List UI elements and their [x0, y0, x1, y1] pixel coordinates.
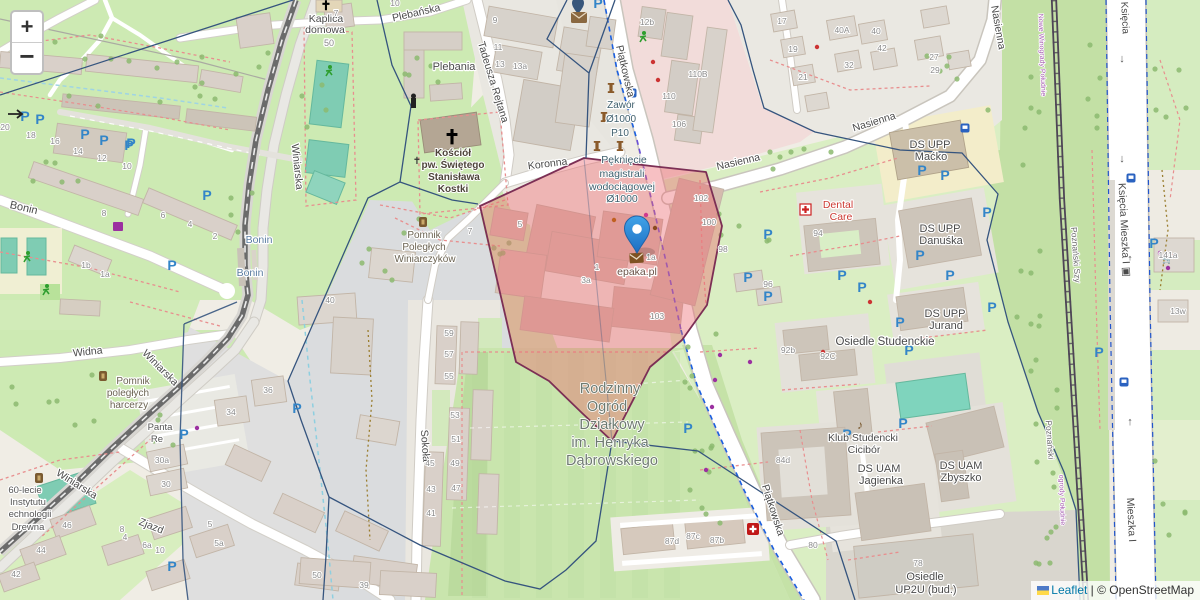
svg-text:P: P: [1149, 235, 1158, 251]
svg-text:Jagienka: Jagienka: [859, 475, 904, 487]
svg-text:46: 46: [62, 520, 72, 530]
svg-text:UP2U (bud.): UP2U (bud.): [895, 584, 956, 596]
svg-text:19: 19: [788, 44, 798, 54]
svg-text:P: P: [292, 400, 301, 416]
svg-text:84d: 84d: [776, 455, 790, 465]
svg-text:Care: Care: [830, 211, 853, 223]
svg-text:110: 110: [662, 91, 676, 101]
svg-text:✝: ✝: [321, 0, 332, 13]
svg-text:1a: 1a: [100, 269, 110, 279]
svg-text:13a: 13a: [513, 61, 527, 71]
svg-text:18: 18: [26, 130, 36, 140]
svg-text:Instytutu: Instytutu: [10, 497, 46, 508]
svg-text:↓: ↓: [1119, 153, 1125, 165]
svg-text:1: 1: [595, 262, 600, 272]
svg-text:wodociągowej: wodociągowej: [588, 181, 655, 193]
svg-text:Pomnik: Pomnik: [407, 230, 441, 241]
svg-text:29: 29: [930, 65, 940, 75]
svg-text:Drewna: Drewna: [12, 522, 45, 533]
svg-text:32: 32: [844, 60, 854, 70]
svg-text:P: P: [945, 267, 954, 283]
svg-text:DS UPP: DS UPP: [920, 223, 961, 235]
svg-text:Pęknięcie: Pęknięcie: [601, 154, 647, 166]
svg-text:P: P: [837, 267, 846, 283]
svg-text:3a: 3a: [581, 275, 591, 285]
svg-text:P: P: [1094, 344, 1103, 360]
svg-text:7: 7: [468, 226, 473, 236]
svg-text:39: 39: [359, 580, 369, 590]
svg-text:P: P: [202, 187, 211, 203]
svg-text:43: 43: [426, 484, 436, 494]
svg-text:92b: 92b: [781, 345, 795, 355]
svg-text:DS UAM: DS UAM: [858, 463, 901, 475]
svg-text:Bonin: Bonin: [246, 234, 273, 246]
svg-text:4: 4: [123, 532, 128, 542]
svg-text:87d: 87d: [665, 536, 679, 546]
svg-text:6a: 6a: [142, 540, 152, 550]
svg-text:10: 10: [390, 0, 400, 8]
svg-text:✝: ✝: [444, 127, 461, 149]
svg-text:45: 45: [425, 458, 435, 468]
svg-text:100: 100: [702, 217, 716, 227]
svg-text:P: P: [898, 415, 907, 431]
svg-text:P: P: [167, 257, 176, 273]
svg-text:5: 5: [518, 219, 523, 229]
svg-text:98: 98: [718, 244, 728, 254]
svg-text:Dąbrowskiego: Dąbrowskiego: [566, 453, 658, 469]
svg-text:4: 4: [188, 219, 193, 229]
svg-text:P: P: [982, 204, 991, 220]
svg-text:Osiedle Studenckie: Osiedle Studenckie: [835, 336, 934, 348]
svg-text:P: P: [35, 111, 44, 127]
svg-text:9: 9: [493, 15, 498, 25]
svg-text:Maćko: Maćko: [915, 151, 947, 163]
svg-text:P: P: [763, 226, 772, 242]
svg-text:im. Henryka: im. Henryka: [571, 435, 649, 451]
svg-text:harcerzy: harcerzy: [110, 400, 148, 411]
svg-text:10: 10: [122, 161, 132, 171]
svg-text:domowa: domowa: [305, 24, 345, 36]
svg-text:5: 5: [208, 519, 213, 529]
svg-text:80: 80: [808, 540, 818, 550]
svg-text:DS UPP: DS UPP: [910, 139, 951, 151]
svg-text:96: 96: [763, 279, 773, 289]
svg-text:poległych: poległych: [107, 388, 149, 399]
svg-text:42: 42: [877, 43, 887, 53]
svg-text:21: 21: [798, 72, 808, 82]
svg-text:DS UAM: DS UAM: [940, 460, 983, 472]
svg-text:P: P: [763, 288, 772, 304]
svg-text:P: P: [593, 0, 602, 11]
svg-text:Kościół: Kościół: [435, 148, 471, 159]
svg-text:Rodzinny: Rodzinny: [580, 381, 641, 397]
svg-text:Zbyszko: Zbyszko: [941, 472, 982, 484]
svg-text:13: 13: [495, 59, 505, 69]
svg-text:Księcia: Księcia: [1118, 1, 1131, 34]
svg-text:50: 50: [312, 570, 322, 580]
svg-text:Re: Re: [151, 434, 163, 445]
svg-text:Zawór: Zawór: [607, 100, 635, 111]
svg-text:53: 53: [450, 410, 460, 420]
svg-text:P: P: [895, 314, 904, 330]
svg-text:Dental: Dental: [823, 199, 853, 211]
svg-text:P: P: [915, 247, 924, 263]
svg-text:102: 102: [694, 193, 708, 203]
svg-text:1b: 1b: [81, 260, 91, 270]
svg-text:Klub Studencki: Klub Studencki: [828, 432, 898, 444]
svg-text:27: 27: [929, 52, 939, 62]
svg-text:87c: 87c: [686, 531, 700, 541]
svg-text:59: 59: [444, 328, 454, 338]
svg-text:Ø1000: Ø1000: [606, 114, 636, 125]
svg-text:Bonin: Bonin: [237, 267, 264, 279]
svg-text:12b: 12b: [640, 17, 654, 27]
svg-text:Cicibór: Cicibór: [848, 444, 881, 456]
svg-text:141a: 141a: [1159, 250, 1178, 260]
svg-text:Panta: Panta: [148, 422, 174, 433]
svg-text:Pomnik: Pomnik: [116, 376, 150, 387]
svg-text:10: 10: [155, 545, 165, 555]
svg-text:P: P: [940, 167, 949, 183]
svg-text:Danuśka: Danuśka: [919, 235, 963, 247]
svg-text:12: 12: [97, 153, 107, 163]
svg-text:34: 34: [226, 407, 236, 417]
svg-text:8: 8: [102, 208, 107, 218]
svg-text:♪: ♪: [857, 418, 863, 432]
svg-text:Osiedle: Osiedle: [906, 571, 943, 583]
svg-text:Działkowy: Działkowy: [579, 417, 645, 433]
svg-text:Jurand: Jurand: [929, 320, 963, 332]
svg-text:P: P: [20, 108, 29, 124]
svg-text:5a: 5a: [214, 538, 224, 548]
svg-text:106: 106: [672, 119, 686, 129]
svg-text:78: 78: [913, 558, 923, 568]
svg-text:P: P: [857, 279, 866, 295]
svg-text:55: 55: [444, 371, 454, 381]
svg-text:41: 41: [426, 508, 436, 518]
svg-text:42: 42: [11, 569, 21, 579]
svg-text:30a: 30a: [155, 455, 169, 465]
svg-text:49: 49: [450, 458, 460, 468]
svg-text:14: 14: [73, 146, 83, 156]
svg-text:2: 2: [213, 231, 218, 241]
svg-text:✝: ✝: [413, 156, 421, 167]
svg-text:↓: ↓: [1119, 53, 1125, 65]
svg-text:Stanisława: Stanisława: [428, 172, 480, 183]
svg-text:P: P: [743, 269, 752, 285]
svg-text:40: 40: [325, 295, 335, 305]
svg-text:Ø1000: Ø1000: [606, 193, 638, 205]
svg-text:103: 103: [650, 311, 664, 321]
svg-text:Plebania: Plebania: [433, 61, 477, 73]
svg-text:17: 17: [777, 16, 787, 26]
svg-text:P: P: [126, 135, 135, 151]
svg-text:echnologii: echnologii: [9, 509, 52, 520]
svg-text:↑: ↑: [1127, 416, 1133, 428]
svg-text:7: 7: [334, 8, 339, 18]
svg-text:epaka.pl: epaka.pl: [617, 266, 657, 278]
svg-text:magistrali: magistrali: [600, 168, 645, 180]
svg-text:11: 11: [494, 42, 503, 52]
svg-text:47: 47: [451, 483, 461, 493]
svg-text:94: 94: [813, 228, 823, 238]
svg-text:DS UPP: DS UPP: [925, 308, 966, 320]
svg-text:60-lecie: 60-lecie: [8, 485, 41, 496]
svg-text:Kostki: Kostki: [438, 184, 469, 195]
svg-text:Mieszka I: Mieszka I: [1124, 497, 1138, 542]
svg-text:110B: 110B: [688, 69, 708, 79]
svg-text:P: P: [917, 162, 926, 178]
svg-text:Ogród: Ogród: [587, 399, 627, 415]
svg-text:51: 51: [451, 434, 461, 444]
svg-text:87b: 87b: [710, 535, 724, 545]
svg-text:20: 20: [0, 122, 10, 132]
svg-text:P: P: [987, 299, 996, 315]
svg-text:6: 6: [161, 210, 166, 220]
svg-text:57: 57: [444, 349, 454, 359]
svg-text:50: 50: [324, 38, 334, 48]
svg-text:13w: 13w: [1170, 306, 1186, 316]
svg-text:36: 36: [263, 385, 273, 395]
svg-text:Poległych: Poległych: [402, 242, 445, 253]
svg-text:40A: 40A: [834, 25, 849, 35]
svg-text:Winiarczyków: Winiarczyków: [394, 254, 456, 265]
svg-text:P: P: [80, 126, 89, 142]
svg-text:40: 40: [871, 26, 881, 36]
svg-text:P: P: [167, 558, 176, 574]
svg-text:P: P: [683, 420, 692, 436]
svg-text:P: P: [99, 132, 108, 148]
svg-text:30: 30: [161, 479, 171, 489]
svg-text:44: 44: [36, 545, 46, 555]
svg-text:P: P: [179, 426, 188, 442]
svg-text:P10: P10: [611, 128, 629, 139]
svg-text:pw. Świętego: pw. Świętego: [422, 158, 485, 171]
svg-text:92C: 92C: [820, 351, 836, 361]
svg-text:16: 16: [50, 136, 60, 146]
